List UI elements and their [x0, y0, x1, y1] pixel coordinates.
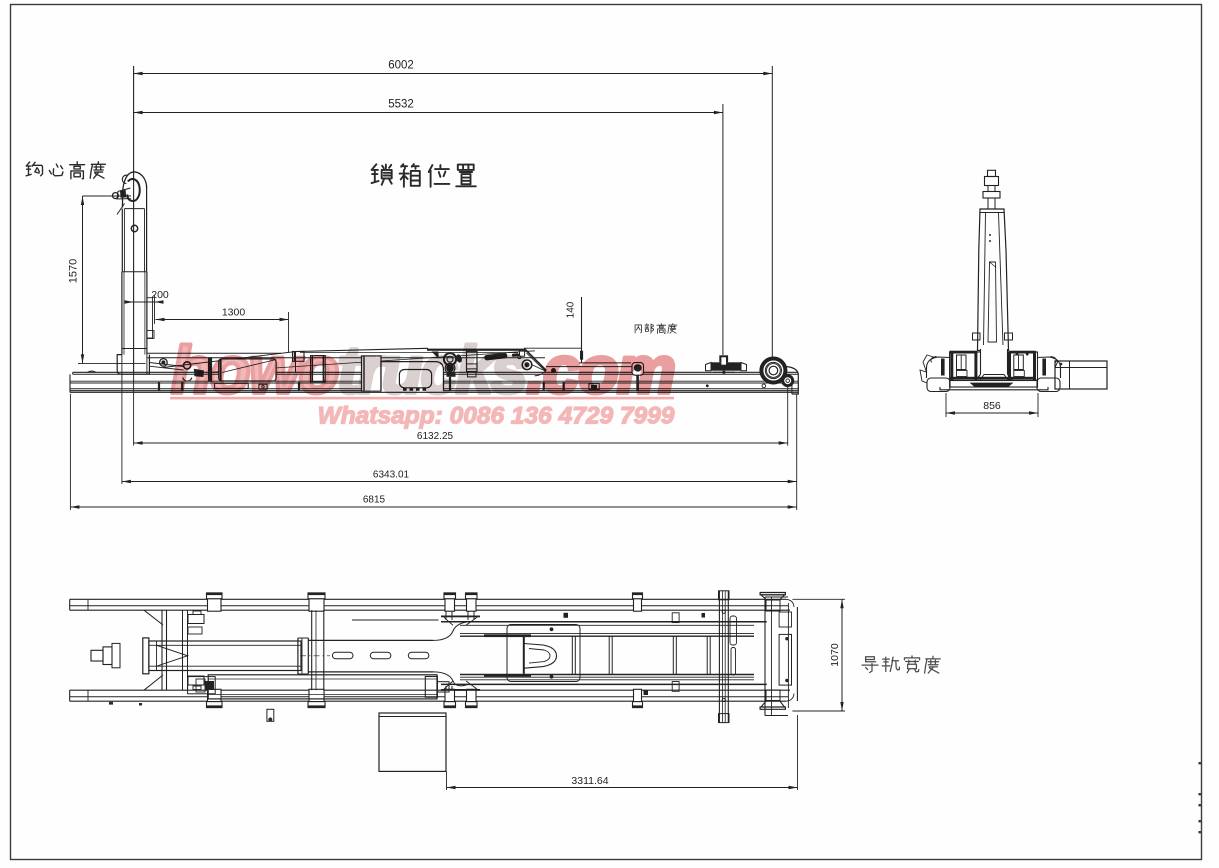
svg-text:1070: 1070	[829, 643, 841, 667]
svg-text:6343.01: 6343.01	[373, 470, 410, 481]
svg-text:6815: 6815	[363, 495, 386, 506]
svg-text:5532: 5532	[388, 99, 414, 111]
svg-text:3311.64: 3311.64	[571, 775, 608, 787]
svg-text:6132.25: 6132.25	[417, 431, 454, 442]
svg-text:1300: 1300	[222, 307, 246, 319]
svg-text:140: 140	[566, 301, 577, 318]
svg-text:856: 856	[983, 400, 1001, 412]
svg-text:200: 200	[151, 289, 169, 301]
svg-text:1570: 1570	[68, 259, 80, 283]
svg-text:Whatsapp: 0086 136 4729 7999: Whatsapp: 0086 136 4729 7999	[318, 403, 675, 430]
svg-text:6002: 6002	[388, 60, 414, 72]
